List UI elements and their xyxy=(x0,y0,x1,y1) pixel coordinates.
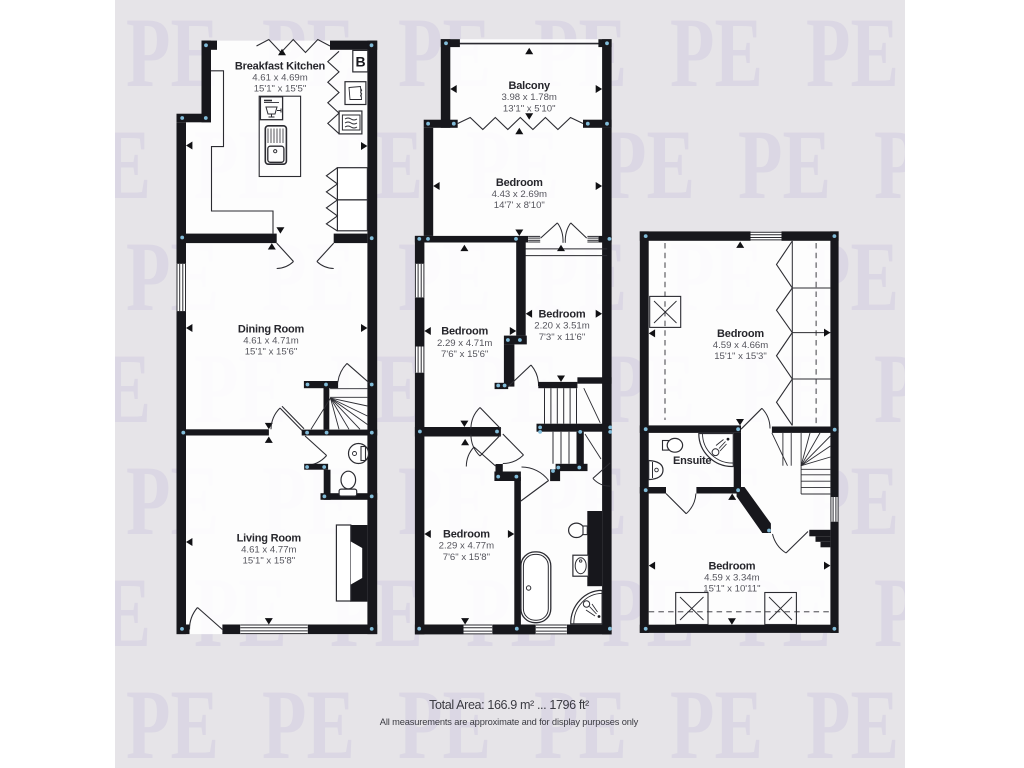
svg-text:PE: PE xyxy=(806,669,899,768)
svg-text:Living Room: Living Room xyxy=(237,532,302,544)
svg-text:Breakfast Kitchen: Breakfast Kitchen xyxy=(235,60,326,72)
svg-text:15'1" x 15'3": 15'1" x 15'3" xyxy=(714,351,767,362)
svg-text:Bedroom: Bedroom xyxy=(717,328,764,340)
svg-text:All measurements are approxima: All measurements are approximate and for… xyxy=(380,717,639,727)
svg-text:Bedroom: Bedroom xyxy=(443,529,490,541)
svg-text:Balcony: Balcony xyxy=(508,80,550,92)
svg-text:15'1" x 15'5": 15'1" x 15'5" xyxy=(254,84,307,95)
svg-text:4.59 x 4.66m: 4.59 x 4.66m xyxy=(713,340,768,351)
svg-text:14'7' x 8'10": 14'7' x 8'10" xyxy=(494,200,545,211)
svg-text:2.29 x 4.77m: 2.29 x 4.77m xyxy=(439,541,494,552)
svg-text:Bedroom: Bedroom xyxy=(496,177,543,189)
svg-text:Ensuite: Ensuite xyxy=(673,455,711,467)
svg-text:Total Area: 166.9 m² ... 1796: Total Area: 166.9 m² ... 1796 ft² xyxy=(429,698,589,712)
svg-text:PE: PE xyxy=(670,0,763,108)
svg-text:Bedroom: Bedroom xyxy=(441,326,488,338)
svg-text:4.61 x 4.69m: 4.61 x 4.69m xyxy=(252,73,307,84)
svg-text:PE: PE xyxy=(670,669,763,768)
svg-text:2.29 x 4.71m: 2.29 x 4.71m xyxy=(437,338,492,349)
svg-text:4.61 x 4.71m: 4.61 x 4.71m xyxy=(243,336,298,347)
svg-text:15'1" x 15'6": 15'1" x 15'6" xyxy=(245,347,298,358)
svg-text:PE: PE xyxy=(738,109,831,220)
svg-text:13'1" x 5'10": 13'1" x 5'10" xyxy=(503,103,556,114)
svg-text:Bedroom: Bedroom xyxy=(708,560,755,572)
svg-text:4.61 x 4.77m: 4.61 x 4.77m xyxy=(241,545,296,556)
svg-text:15'1" x 15'8": 15'1" x 15'8" xyxy=(242,556,295,567)
svg-text:PE: PE xyxy=(262,669,355,768)
svg-text:4.43 x 2.69m: 4.43 x 2.69m xyxy=(492,189,547,200)
svg-text:7'3" x 11'6": 7'3" x 11'6" xyxy=(539,332,586,343)
svg-text:Dining Room: Dining Room xyxy=(238,323,305,335)
svg-text:7'6" x 15'6": 7'6" x 15'6" xyxy=(441,349,488,360)
svg-text:4.59 x 3.34m: 4.59 x 3.34m xyxy=(704,573,759,584)
svg-text:B: B xyxy=(355,54,365,70)
svg-text:3.98 x 1.78m: 3.98 x 1.78m xyxy=(501,92,556,103)
svg-text:PE: PE xyxy=(602,109,695,220)
svg-text:15'1" x 10'11": 15'1" x 10'11" xyxy=(703,584,760,595)
svg-text:7'6" x 15'8": 7'6" x 15'8" xyxy=(443,552,490,563)
svg-text:PE: PE xyxy=(126,669,219,768)
svg-text:Bedroom: Bedroom xyxy=(539,309,586,321)
svg-text:2.20 x 3.51m: 2.20 x 3.51m xyxy=(534,321,589,332)
svg-text:PE: PE xyxy=(806,0,899,108)
